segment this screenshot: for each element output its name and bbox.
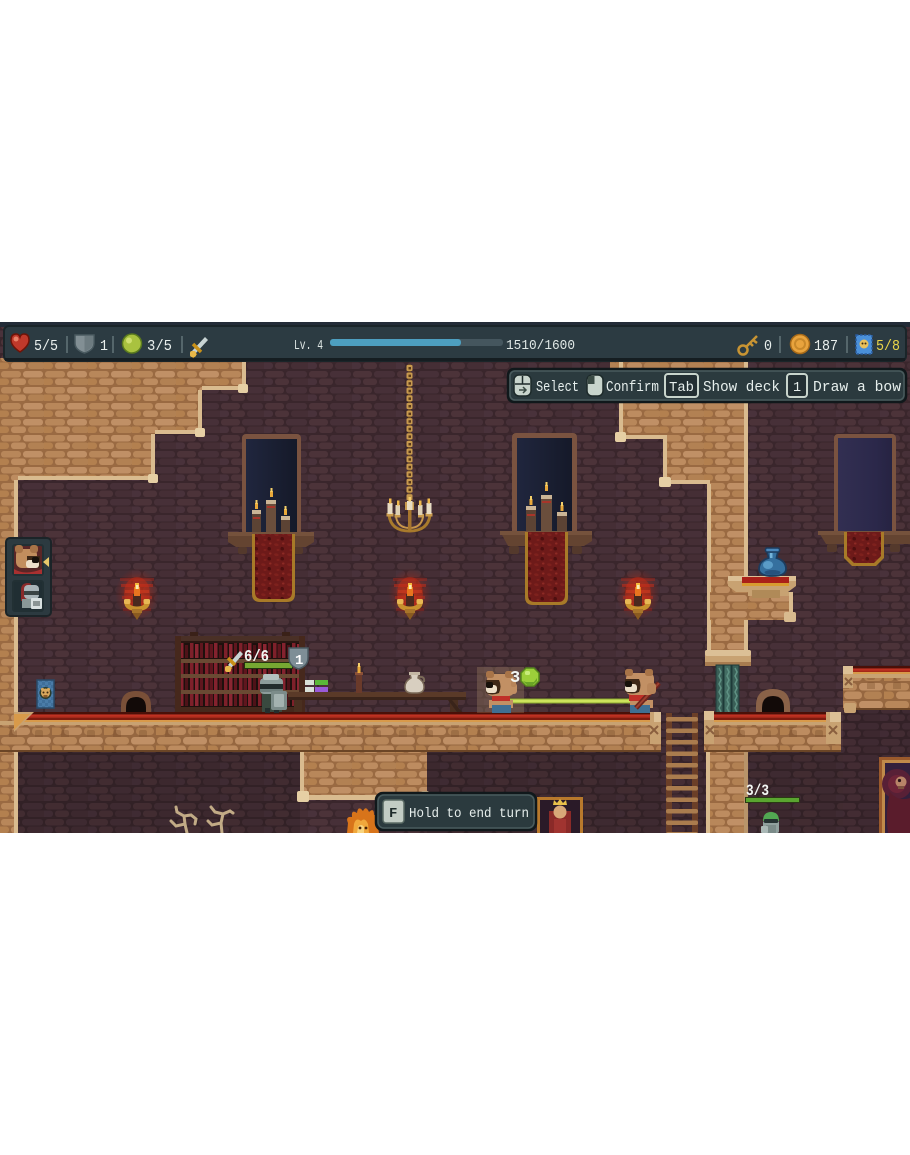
svg-text:F: F (389, 806, 397, 822)
svg-text:3/5: 3/5 (147, 338, 172, 355)
svg-text:3: 3 (510, 669, 520, 688)
svg-text:1: 1 (100, 338, 108, 355)
svg-text:1: 1 (793, 381, 801, 396)
svg-text:Show deck: Show deck (703, 380, 780, 396)
svg-text:Draw a bow: Draw a bow (813, 380, 901, 396)
svg-text:Confirm: Confirm (606, 380, 659, 396)
svg-text:Tab: Tab (669, 381, 694, 396)
svg-text:187: 187 (814, 338, 838, 355)
svg-text:0: 0 (764, 338, 772, 355)
svg-text:5/5: 5/5 (34, 338, 58, 355)
svg-text:Select: Select (536, 380, 579, 396)
svg-text:1510/1600: 1510/1600 (506, 338, 575, 354)
svg-text:Hold to end turn: Hold to end turn (409, 807, 529, 822)
svg-text:1: 1 (295, 653, 303, 669)
svg-text:Lv. 4: Lv. 4 (294, 338, 323, 354)
svg-text:5/8: 5/8 (876, 338, 900, 355)
